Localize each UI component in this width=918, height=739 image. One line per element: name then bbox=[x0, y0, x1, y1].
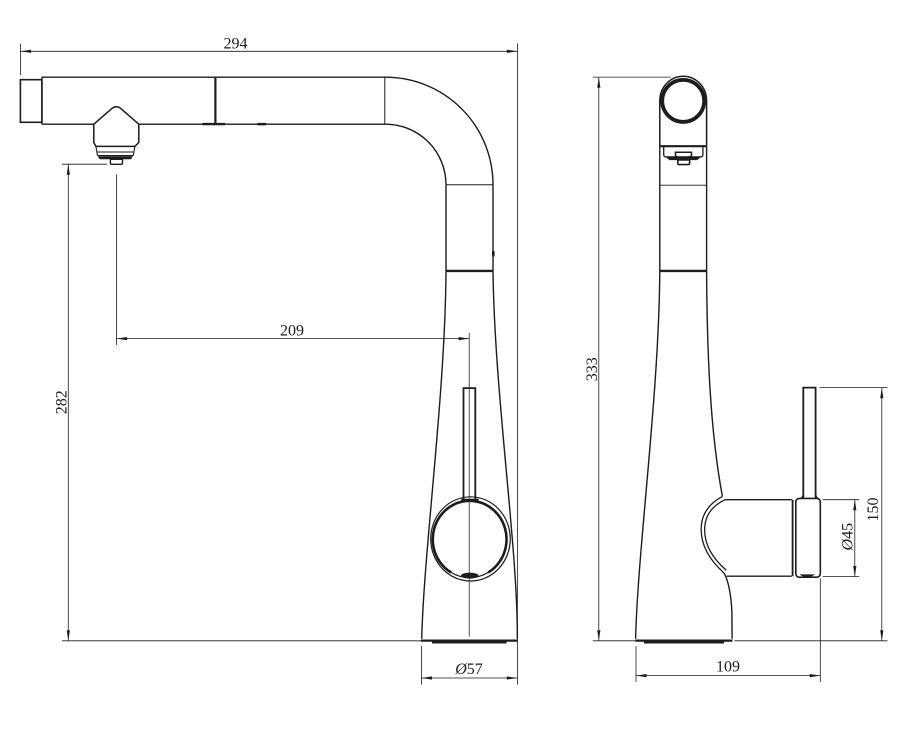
svg-text:150: 150 bbox=[865, 498, 882, 522]
svg-text:Ø45: Ø45 bbox=[839, 523, 856, 552]
svg-text:Ø57: Ø57 bbox=[454, 661, 483, 678]
svg-text:282: 282 bbox=[54, 390, 71, 414]
svg-text:333: 333 bbox=[584, 357, 601, 381]
svg-text:109: 109 bbox=[716, 659, 740, 676]
svg-text:209: 209 bbox=[280, 322, 304, 339]
svg-text:294: 294 bbox=[224, 36, 248, 53]
